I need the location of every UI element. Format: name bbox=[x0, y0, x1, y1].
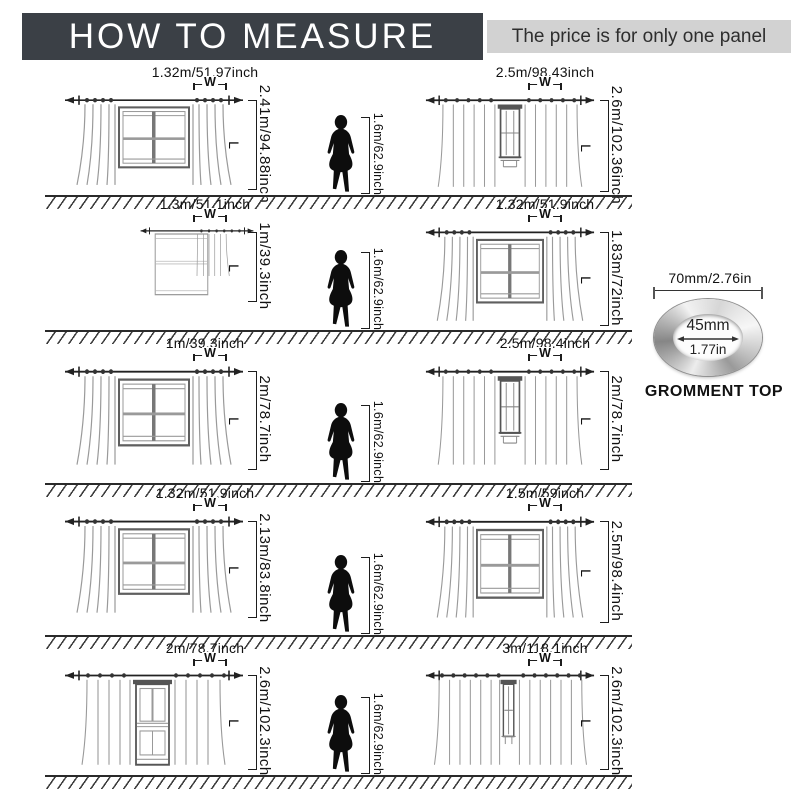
grommet-hole: 45mm 1.77in bbox=[673, 314, 743, 361]
row3-left-width-bracket: W bbox=[193, 355, 227, 363]
row4-right-curtain-diagram bbox=[425, 516, 595, 621]
person-height-label: 1.6m/62.9inch bbox=[371, 401, 385, 483]
w-label: W bbox=[537, 208, 553, 221]
row2-left-length-label: 1m/39.3inch bbox=[256, 222, 273, 309]
row2-left-curtain-diagram bbox=[140, 227, 254, 297]
row5-left-curtain-diagram bbox=[64, 670, 244, 768]
person-height-label: 1.6m/62.9inch bbox=[371, 113, 385, 195]
row3-left-curtain-diagram bbox=[64, 366, 244, 468]
w-label: W bbox=[537, 652, 553, 665]
l-label: L bbox=[578, 569, 594, 577]
person-height-label: 1.6m/62.9inch bbox=[371, 248, 385, 330]
w-label: W bbox=[537, 76, 553, 89]
person-height-bracket bbox=[361, 697, 370, 774]
w-label: W bbox=[202, 652, 218, 665]
l-label: L bbox=[578, 276, 594, 284]
ground-line bbox=[45, 775, 632, 789]
row1-left-length-label: 2.41m/94.88inch bbox=[256, 85, 273, 203]
row1-left-curtain-diagram bbox=[64, 95, 244, 188]
person-silhouette bbox=[320, 115, 360, 195]
w-label: W bbox=[202, 497, 218, 510]
w-label: W bbox=[202, 347, 218, 360]
row3-left-length-label: 2m/78.7inch bbox=[256, 375, 273, 462]
l-label: L bbox=[226, 417, 242, 425]
person-silhouette bbox=[320, 403, 360, 483]
grommet-caption: GROMMENT TOP bbox=[636, 383, 792, 401]
page-title: HOW TO MEASURE bbox=[22, 13, 483, 60]
row2-left-width-bracket: W bbox=[193, 216, 227, 224]
person-silhouette bbox=[320, 695, 360, 775]
person-silhouette bbox=[320, 250, 360, 330]
grommet-outer-diameter-label: 70mm/2.76in bbox=[640, 270, 780, 286]
l-label: L bbox=[578, 417, 594, 425]
row1-right-length-label: 2.6m/102.36inch bbox=[608, 86, 625, 204]
l-label: L bbox=[226, 264, 242, 272]
grommet-inner-diameter-in: 1.77in bbox=[690, 343, 727, 357]
how-to-measure-infographic: HOW TO MEASURE The price is for only one… bbox=[0, 0, 800, 800]
row5-right-curtain-diagram bbox=[425, 670, 595, 768]
w-label: W bbox=[537, 497, 553, 510]
row1-right-curtain-diagram bbox=[425, 95, 595, 190]
price-note: The price is for only one panel bbox=[487, 20, 791, 53]
person-height-label: 1.6m/62.9inch bbox=[371, 693, 385, 775]
row3-right-width-bracket: W bbox=[528, 355, 562, 363]
row4-left-curtain-diagram bbox=[64, 516, 244, 616]
l-label: L bbox=[226, 141, 242, 149]
row4-right-width-bracket: W bbox=[528, 505, 562, 513]
grommet-inner-diameter-mm: 45mm bbox=[686, 318, 729, 334]
w-label: W bbox=[537, 347, 553, 360]
row3-right-length-label: 2m/78.7inch bbox=[608, 375, 625, 462]
person-silhouette bbox=[320, 555, 360, 635]
row5-right-width-bracket: W bbox=[528, 660, 562, 668]
row2-right-curtain-diagram bbox=[425, 227, 595, 324]
person-height-bracket bbox=[361, 252, 370, 329]
row5-left-length-label: 2.6m/102.3inch bbox=[256, 666, 273, 776]
l-label: L bbox=[578, 719, 594, 727]
row1-left-width-bracket: W bbox=[193, 84, 227, 92]
person-height-bracket bbox=[361, 557, 370, 634]
row2-right-width-bracket: W bbox=[528, 216, 562, 224]
person-height-label: 1.6m/62.9inch bbox=[371, 553, 385, 635]
l-label: L bbox=[578, 144, 594, 152]
row4-left-length-label: 2.13m/83.8inch bbox=[256, 513, 273, 623]
person-height-bracket bbox=[361, 117, 370, 194]
l-label: L bbox=[226, 566, 242, 574]
w-label: W bbox=[202, 208, 218, 221]
row3-right-curtain-diagram bbox=[425, 366, 595, 468]
row1-right-width-bracket: W bbox=[528, 84, 562, 92]
grommet-ring: 45mm 1.77in bbox=[654, 299, 762, 376]
row4-right-length-label: 2.5m/98.4inch bbox=[608, 521, 625, 622]
row5-right-length-label: 2.6m/102.3inch bbox=[608, 666, 625, 776]
row5-left-width-bracket: W bbox=[193, 660, 227, 668]
w-label: W bbox=[202, 76, 218, 89]
l-label: L bbox=[226, 719, 242, 727]
row2-right-length-label: 1.83m/72inch bbox=[608, 230, 625, 326]
grommet-outer-dimension-line bbox=[653, 290, 763, 291]
row4-left-width-bracket: W bbox=[193, 505, 227, 513]
person-height-bracket bbox=[361, 405, 370, 482]
